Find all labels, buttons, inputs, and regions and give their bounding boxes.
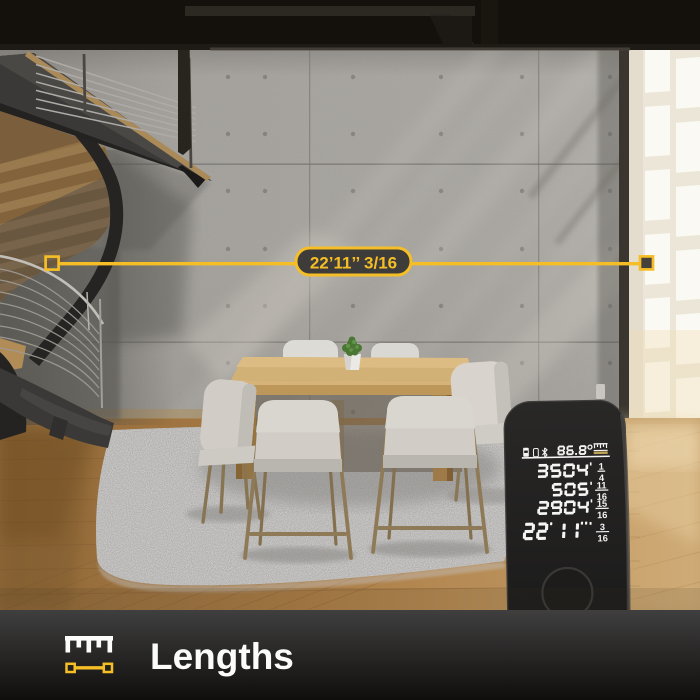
svg-text:Lengths: Lengths — [150, 636, 294, 677]
svg-text:11: 11 — [597, 480, 607, 490]
svg-text:16: 16 — [597, 533, 608, 543]
svg-text:3: 3 — [600, 522, 605, 532]
svg-text:16: 16 — [597, 510, 608, 520]
svg-text:1: 1 — [599, 462, 604, 472]
svg-text:15: 15 — [597, 499, 608, 509]
svg-text:22’11’’ 3/16: 22’11’’ 3/16 — [310, 253, 397, 272]
